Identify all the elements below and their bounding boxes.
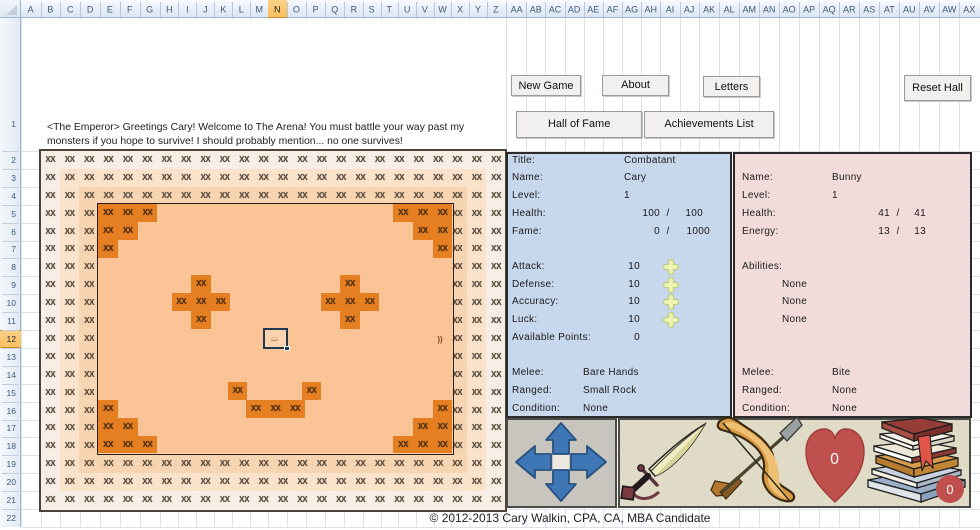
- svg-text:0: 0: [947, 483, 954, 497]
- svg-text:0: 0: [830, 451, 839, 468]
